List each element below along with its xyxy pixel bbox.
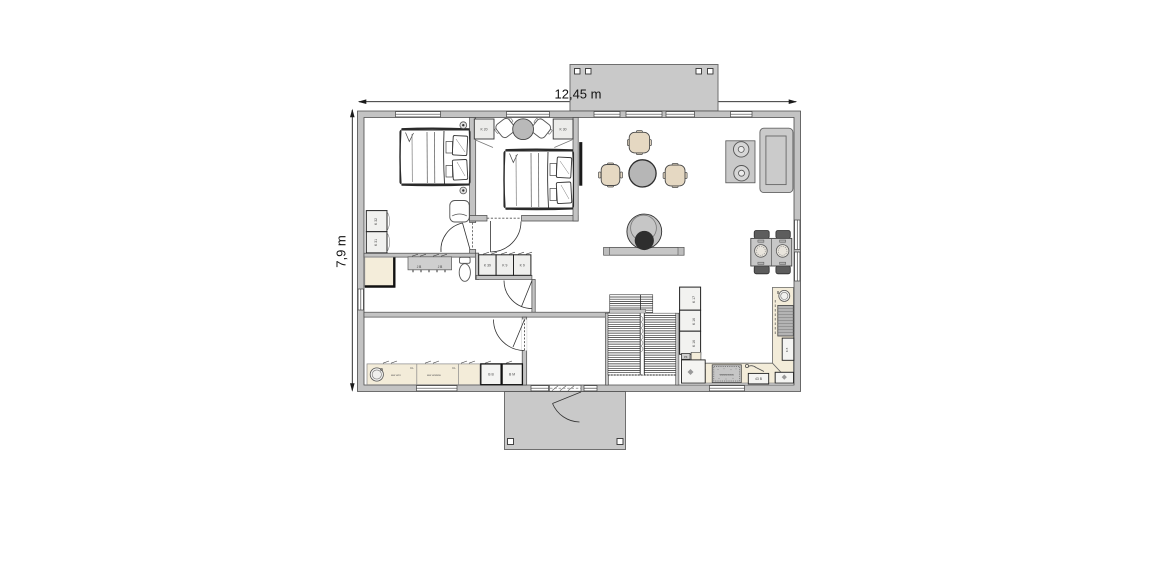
svg-text:K 9: K 9 xyxy=(502,264,507,268)
svg-text:K 30: K 30 xyxy=(560,127,567,131)
svg-text:K 17: K 17 xyxy=(692,296,696,303)
svg-text:7,9 m: 7,9 m xyxy=(334,235,349,268)
svg-text:CL: CL xyxy=(410,366,414,370)
svg-text:K 39: K 39 xyxy=(484,264,491,268)
svg-text:K 16: K 16 xyxy=(692,340,696,347)
svg-text:K 32: K 32 xyxy=(374,218,378,225)
svg-text:ww wm: ww wm xyxy=(391,373,401,377)
svg-text:K 31: K 31 xyxy=(374,239,378,246)
svg-text:B M: B M xyxy=(509,373,515,377)
svg-text:ww wwww: ww wwww xyxy=(427,373,442,377)
svg-text:K 9: K 9 xyxy=(520,264,525,268)
svg-text:12,45 m: 12,45 m xyxy=(555,87,602,102)
svg-text:K 20: K 20 xyxy=(481,127,488,131)
svg-text:J B: J B xyxy=(417,265,422,269)
svg-text:PK: PK xyxy=(684,355,688,359)
svg-text:K 16: K 16 xyxy=(692,318,696,325)
svg-text:CL: CL xyxy=(452,366,456,370)
svg-text:B B: B B xyxy=(488,373,494,377)
svg-text:K 8: K 8 xyxy=(785,347,789,352)
svg-text:43 B: 43 B xyxy=(755,377,763,381)
svg-text:J B: J B xyxy=(438,265,443,269)
svg-text:wwwwwww: wwwwwww xyxy=(720,372,735,376)
